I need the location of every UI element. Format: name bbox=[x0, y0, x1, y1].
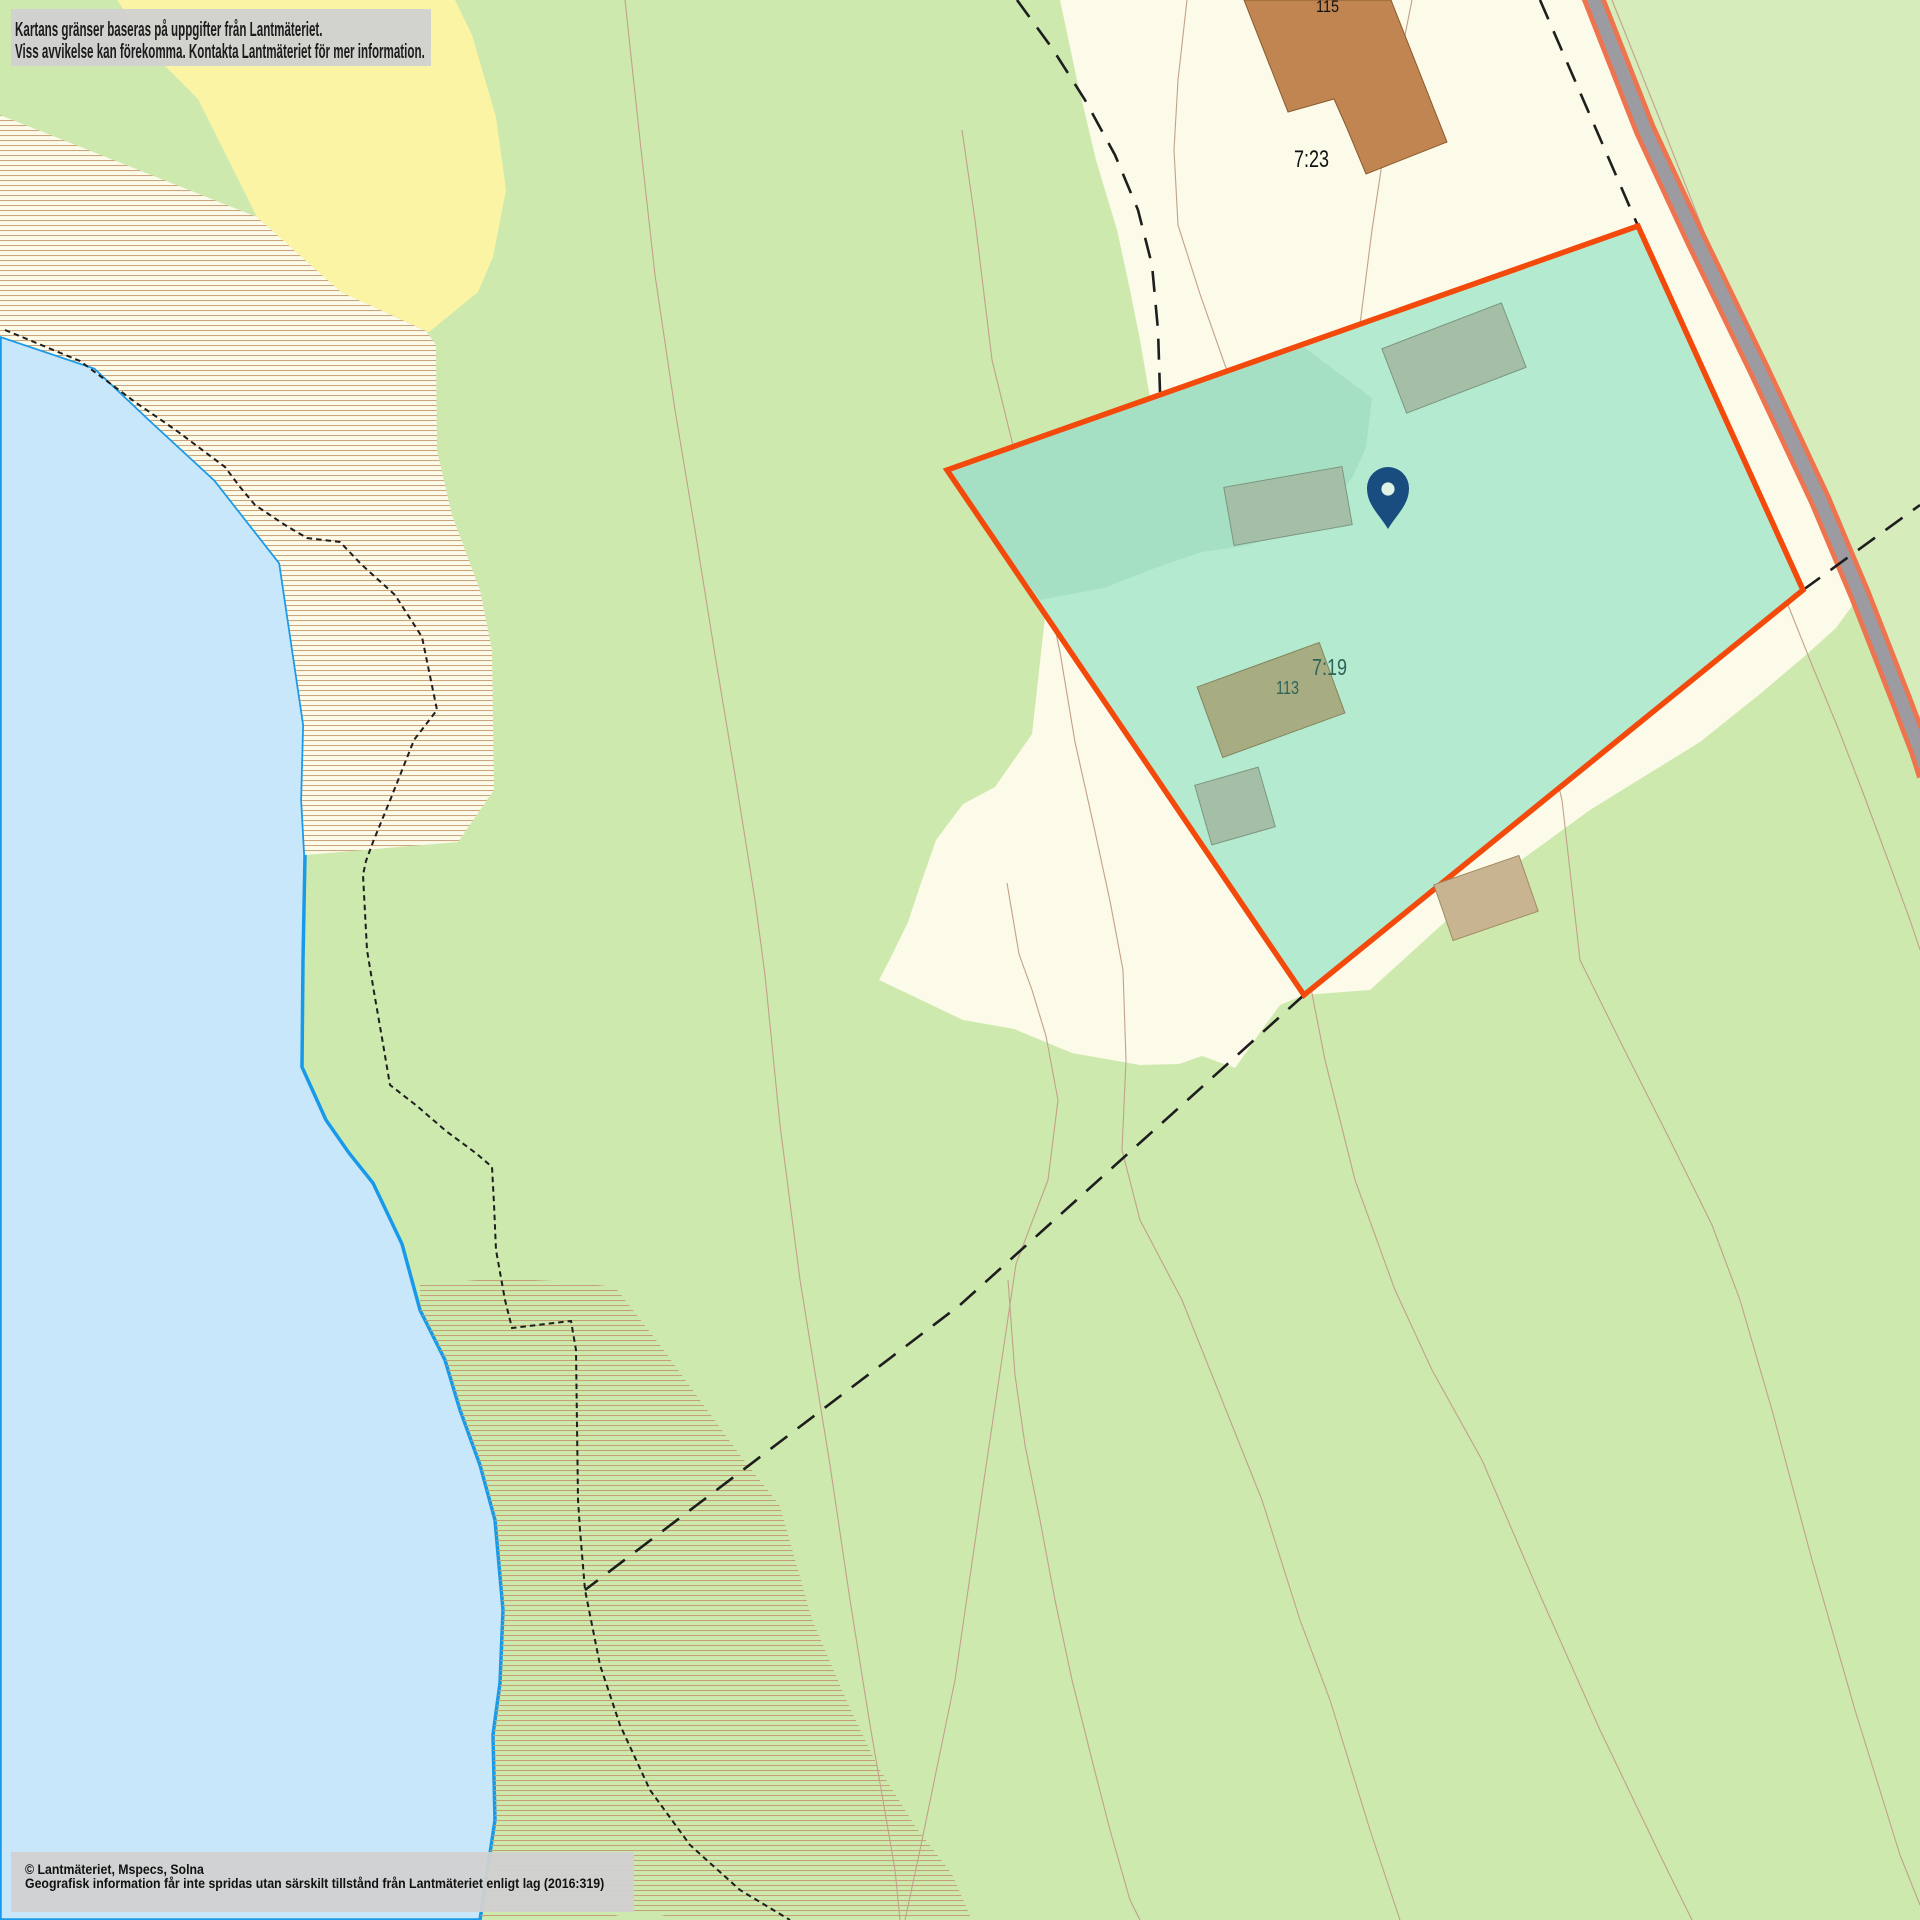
svg-text:115: 115 bbox=[1316, 0, 1339, 16]
svg-text:7:19: 7:19 bbox=[1312, 654, 1347, 680]
svg-text:7:23: 7:23 bbox=[1294, 146, 1329, 173]
svg-text:113: 113 bbox=[1276, 678, 1299, 698]
